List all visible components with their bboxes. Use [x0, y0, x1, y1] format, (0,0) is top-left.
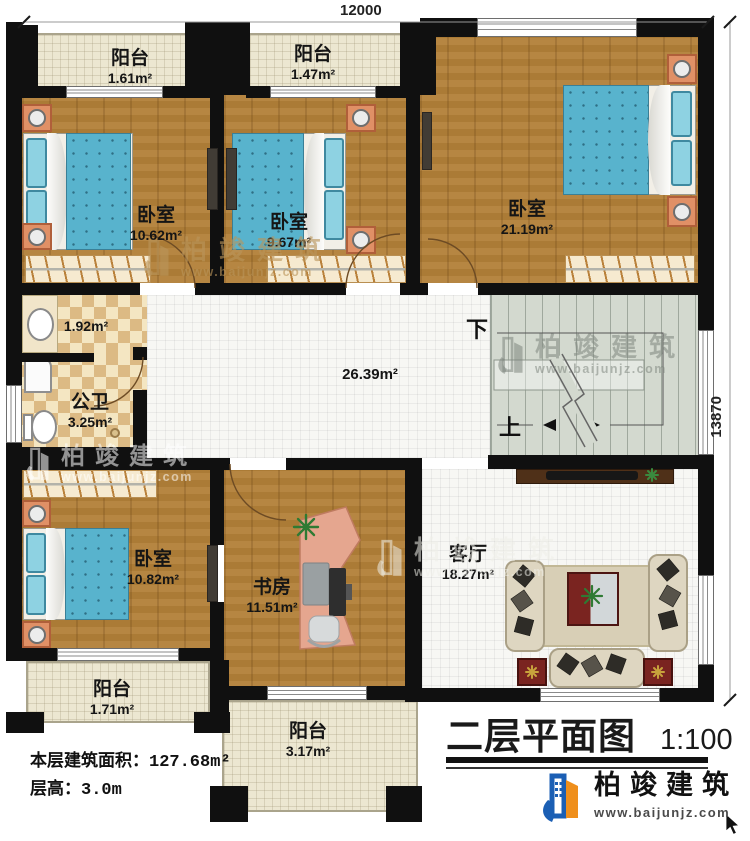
- wardrobe: [23, 470, 157, 498]
- wall: [400, 283, 428, 295]
- wall: [246, 86, 270, 98]
- room-label-balcony-top-mid: 阳台 1.47m²: [291, 44, 335, 82]
- end-table-left: [517, 658, 547, 686]
- brand-logo-icon: [538, 772, 584, 826]
- wall: [376, 86, 406, 98]
- brand-url: www.baijunjz.com: [594, 805, 738, 820]
- room-label-bedroom-top-left: 卧室 10.62m²: [130, 205, 182, 243]
- sliding-door: [66, 86, 163, 98]
- wall: [488, 455, 698, 469]
- window: [540, 688, 660, 702]
- wall: [210, 786, 248, 822]
- bed-pillow: [26, 533, 46, 573]
- plan-scale: 1:100: [660, 724, 733, 757]
- nightstand: [346, 226, 376, 254]
- door-leaf: [207, 148, 218, 210]
- dimension-width: 12000: [340, 2, 382, 19]
- room-label-living: 客厅 18.27m²: [442, 544, 494, 582]
- wardrobe: [565, 255, 695, 283]
- toilet-bowl: [31, 410, 57, 444]
- title-block: 二层平面图 1:100: [446, 706, 733, 760]
- nightstand: [346, 104, 376, 132]
- wall: [386, 786, 422, 822]
- floor-hallway: [147, 295, 490, 458]
- wall: [22, 25, 38, 91]
- wall: [422, 688, 542, 702]
- wall: [6, 283, 140, 295]
- nightstand: [22, 500, 51, 527]
- room-label-hallway: 26.39m²: [342, 366, 398, 383]
- wall: [163, 86, 210, 98]
- wall: [179, 648, 214, 661]
- washing-machine: [24, 357, 52, 393]
- wall: [195, 283, 346, 295]
- nightstand: [667, 196, 697, 227]
- wardrobe: [25, 255, 151, 283]
- wall: [286, 458, 422, 470]
- sliding-door: [267, 686, 367, 700]
- window: [477, 18, 637, 37]
- room-label-bedroom-bottom-left: 卧室 10.82m²: [127, 549, 179, 587]
- dimension-height: 13870: [708, 396, 725, 438]
- room-label-balcony-bottom-mid: 阳台 3.17m²: [286, 721, 330, 759]
- wall: [478, 283, 714, 295]
- sink: [27, 308, 54, 341]
- door-leaf: [207, 545, 218, 602]
- coffee-table: [567, 572, 619, 626]
- sliding-window: [57, 648, 179, 661]
- wall: [406, 22, 420, 283]
- bed-pillow: [26, 138, 47, 188]
- note-floor-height: 层高：3.0m: [30, 774, 122, 800]
- nightstand: [22, 104, 52, 132]
- wall: [22, 86, 66, 98]
- bed-pillow: [671, 140, 692, 186]
- bed-sheet: [648, 85, 670, 195]
- wardrobe: [267, 255, 406, 283]
- wall: [6, 712, 44, 733]
- room-label-bathroom: 公卫 3.25m²: [68, 392, 112, 430]
- stairs-up-label: 上: [499, 410, 521, 442]
- room-label-bedroom-top-mid: 卧室 9.67m²: [267, 212, 311, 250]
- bed-pillow: [324, 190, 344, 240]
- wall: [6, 458, 230, 470]
- window: [6, 385, 22, 443]
- brand-name: 柏竣建筑: [594, 772, 738, 799]
- wall: [185, 22, 250, 95]
- title-underline-thick: [446, 757, 708, 763]
- nightstand: [667, 54, 697, 84]
- bed-blanket: [66, 133, 131, 250]
- wall: [213, 686, 267, 700]
- wall: [6, 22, 22, 661]
- wall: [405, 458, 422, 702]
- door-leaf: [226, 148, 237, 210]
- sofa-left: [505, 560, 545, 652]
- title-underline-thin: [446, 767, 708, 769]
- plan-title: 二层平面图: [446, 706, 636, 760]
- room-label-bedroom-top-right: 卧室 21.19m²: [501, 199, 553, 237]
- wall: [367, 686, 422, 700]
- bed-pillow: [671, 91, 692, 137]
- floor-stairwell: [490, 295, 699, 455]
- bed-blanket: [563, 85, 649, 195]
- sofa-bottom: [549, 648, 645, 688]
- room-label-study: 书房 11.51m²: [246, 577, 297, 615]
- stairs-down-label: 下: [466, 312, 488, 344]
- wall: [133, 390, 147, 453]
- room-label-balcony-top-left: 阳台 1.61m²: [108, 48, 152, 86]
- window: [698, 575, 714, 665]
- nightstand: [22, 223, 52, 250]
- brand-logo: 柏竣建筑 www.baijunjz.com: [538, 772, 738, 826]
- nightstand: [22, 621, 51, 648]
- bed-pillow: [26, 575, 46, 615]
- wall: [22, 353, 94, 362]
- wall: [6, 648, 57, 661]
- sofa-right: [648, 554, 688, 652]
- bed-blanket: [65, 528, 129, 620]
- tv-screen: [546, 471, 638, 480]
- door-leaf: [422, 112, 432, 170]
- note-floor-area: 本层建筑面积：127.68m²: [30, 746, 231, 772]
- floorplan-canvas: 阳台 1.61m² 阳台 1.47m² 卧室 10.62m² 卧室 9.67m²…: [0, 0, 750, 841]
- end-table-right: [643, 658, 673, 686]
- wall: [133, 347, 147, 360]
- room-label-balcony-bottom-left: 阳台 1.71m²: [90, 679, 134, 717]
- bed-pillow: [324, 138, 344, 188]
- room-label-vanity: 1.92m²: [64, 318, 108, 334]
- sliding-door: [270, 86, 376, 98]
- wall: [658, 688, 714, 702]
- wall: [210, 470, 224, 545]
